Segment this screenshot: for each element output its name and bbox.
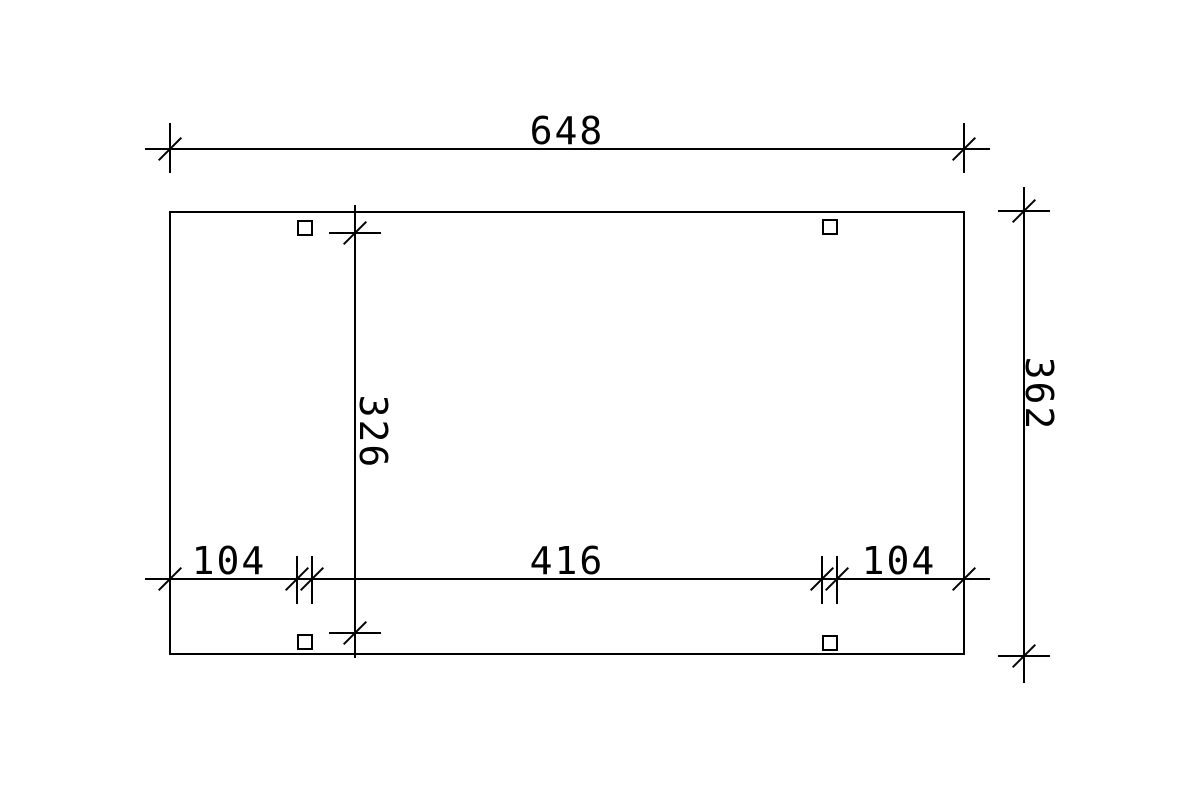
dim-bottom-left-label: 104 <box>192 542 267 580</box>
post-top-right <box>822 219 838 235</box>
dim-bottom-middle-label: 416 <box>530 542 605 580</box>
drawing-canvas: 648 362 326 104 416 104 <box>0 0 1200 800</box>
post-bottom-right <box>822 635 838 651</box>
post-bottom-left <box>297 634 313 650</box>
dim-depth-line <box>1023 187 1025 683</box>
dim-depth-label: 362 <box>1020 357 1058 432</box>
post-top-left <box>297 220 313 236</box>
dim-width-label: 648 <box>530 112 605 150</box>
dim-bottom-right-label: 104 <box>862 542 937 580</box>
dim-inner-depth-label: 326 <box>354 395 392 470</box>
